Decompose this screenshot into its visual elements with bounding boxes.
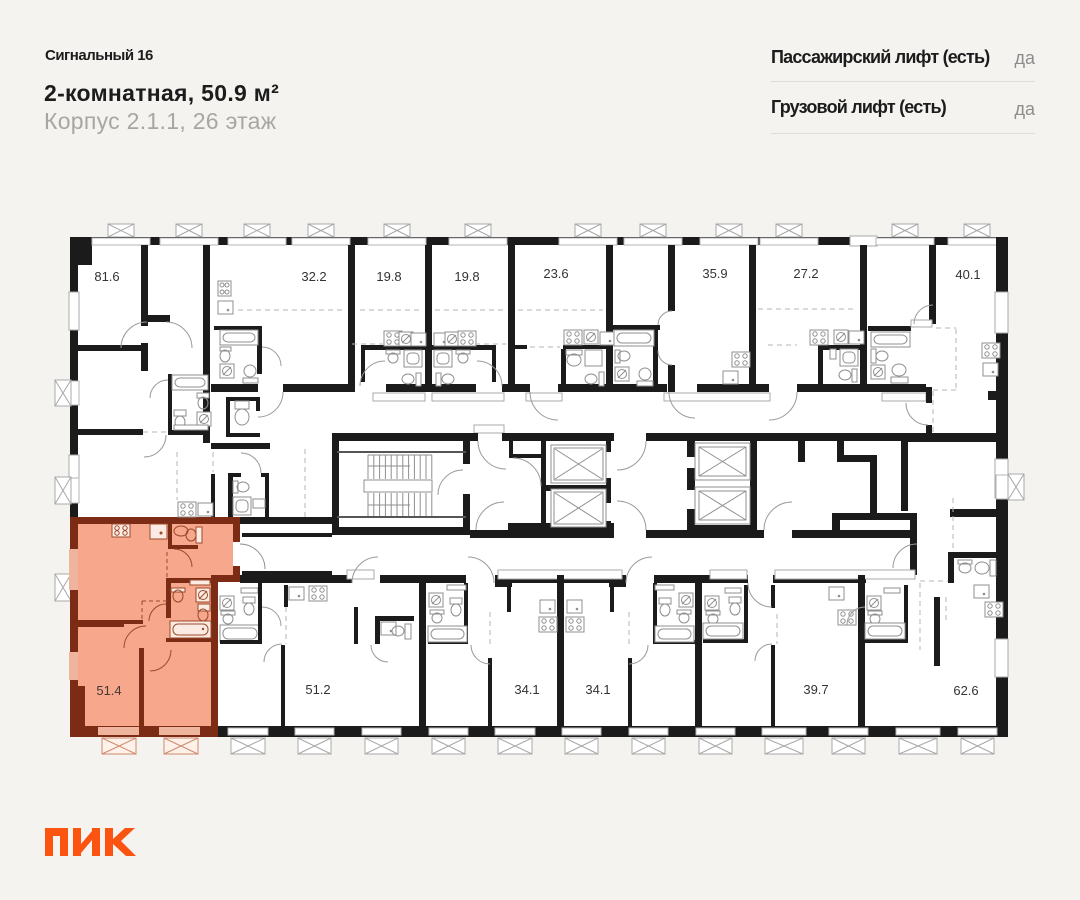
svg-text:27.2: 27.2 bbox=[793, 266, 818, 281]
svg-text:51.2: 51.2 bbox=[305, 682, 330, 697]
svg-text:19.8: 19.8 bbox=[376, 269, 401, 284]
svg-text:19.8: 19.8 bbox=[454, 269, 479, 284]
svg-text:34.1: 34.1 bbox=[514, 682, 539, 697]
svg-text:23.6: 23.6 bbox=[543, 266, 568, 281]
svg-text:32.2: 32.2 bbox=[301, 269, 326, 284]
svg-text:51.4: 51.4 bbox=[96, 683, 121, 698]
svg-text:39.7: 39.7 bbox=[803, 682, 828, 697]
svg-text:35.9: 35.9 bbox=[702, 266, 727, 281]
svg-text:81.6: 81.6 bbox=[94, 269, 119, 284]
svg-text:34.1: 34.1 bbox=[585, 682, 610, 697]
svg-text:40.1: 40.1 bbox=[955, 267, 980, 282]
svg-text:62.6: 62.6 bbox=[953, 683, 978, 698]
